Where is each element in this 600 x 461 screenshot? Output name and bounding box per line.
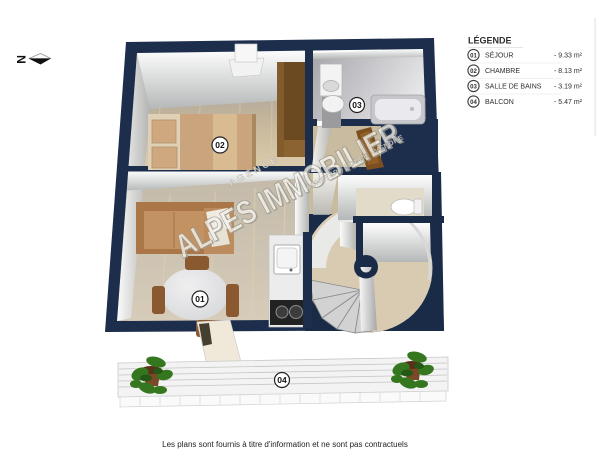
svg-text:01: 01: [470, 53, 477, 59]
svg-text:- 5.47 m²: - 5.47 m²: [554, 99, 583, 106]
svg-text:SÉJOUR: SÉJOUR: [485, 51, 513, 60]
svg-text:03: 03: [352, 100, 362, 110]
svg-text:- 3.19 m²: - 3.19 m²: [554, 84, 583, 91]
svg-text:Les plans sont fournis à titre: Les plans sont fournis à titre d'informa…: [162, 440, 408, 449]
svg-text:02: 02: [470, 69, 477, 75]
svg-text:- 9.33 m²: - 9.33 m²: [554, 53, 583, 60]
svg-text:N: N: [15, 55, 29, 64]
svg-text:- 8.13 m²: - 8.13 m²: [554, 68, 583, 75]
svg-text:02: 02: [215, 140, 225, 150]
svg-text:01: 01: [195, 294, 205, 304]
svg-text:04: 04: [470, 100, 477, 106]
svg-text:CHAMBRE: CHAMBRE: [485, 68, 520, 75]
svg-text:SALLE DE BAINS: SALLE DE BAINS: [485, 84, 542, 91]
svg-text:03: 03: [470, 84, 477, 90]
svg-text:BALCON: BALCON: [485, 99, 514, 106]
svg-text:LÉGENDE: LÉGENDE: [468, 36, 512, 46]
svg-text:04: 04: [277, 375, 287, 385]
